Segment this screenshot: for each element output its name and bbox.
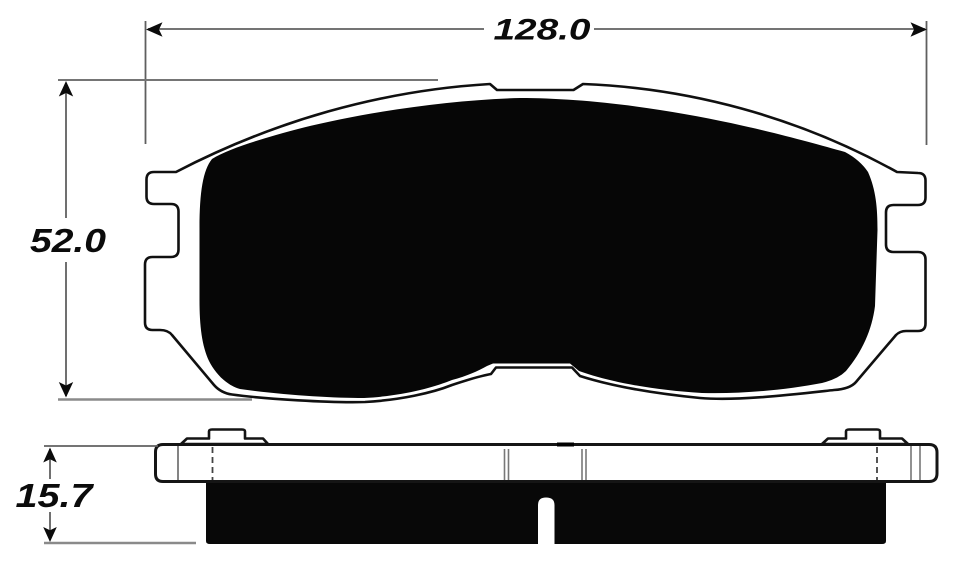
svg-text:15.7: 15.7 [16,477,95,514]
svg-text:128.0: 128.0 [494,14,591,47]
svg-text:52.0: 52.0 [30,222,107,259]
